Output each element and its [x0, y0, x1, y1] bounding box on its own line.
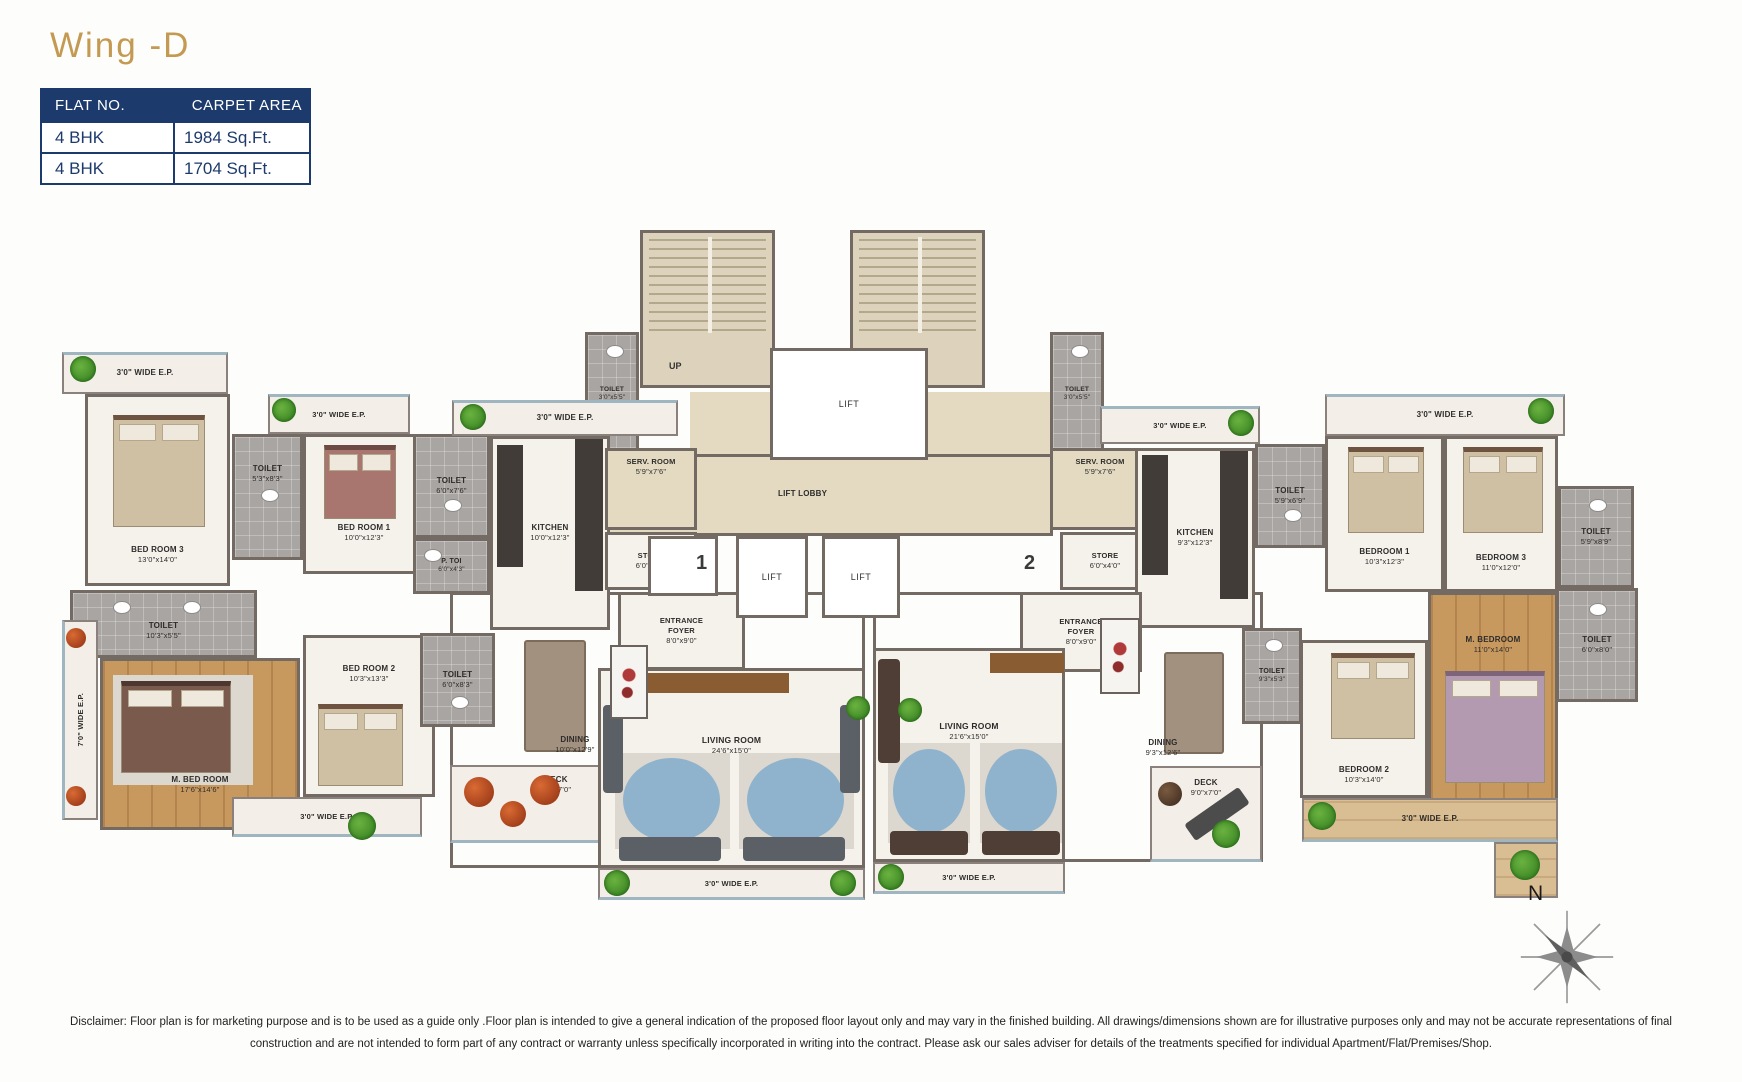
wall-art	[610, 645, 648, 719]
room-label: TOILET 6'0"x8'0"	[1582, 635, 1612, 655]
room-label: STORE 6'0"x4'0"	[1090, 551, 1120, 571]
core-duct	[648, 536, 718, 596]
plant-icon	[1228, 410, 1254, 436]
flat-type-cell: 4 BHK	[42, 123, 175, 152]
room-label: TOILET 10'3"x5'5"	[146, 621, 181, 641]
planter-icon	[66, 786, 86, 806]
lift-lobby-label: LIFT LOBBY	[778, 489, 827, 499]
plant-icon	[1212, 820, 1240, 848]
room-label: SERV. ROOM 5'9"x7'6"	[1075, 457, 1124, 477]
balcony-label: 3'0" WIDE E.P.	[117, 368, 174, 378]
toilet-bedroom2-left: TOILET 6'0"x8'3"	[420, 633, 495, 727]
bed-icon	[1331, 653, 1415, 739]
lift-label: LIFT	[839, 399, 860, 409]
kitchen-counter	[1142, 455, 1168, 575]
deck-right: DECK 9'0"x7'0"	[1150, 766, 1262, 862]
wc-icon	[183, 601, 201, 614]
room-label: M. BED ROOM 17'6"x14'6"	[171, 775, 228, 795]
planter-icon	[500, 801, 526, 827]
wc-icon	[261, 489, 279, 502]
compass-north-label: N	[1528, 882, 1543, 906]
carpet-area-header: CARPET AREA	[175, 90, 309, 121]
bedroom1-right: BEDROOM 1 10'3"x12'3"	[1325, 436, 1444, 592]
disclaimer-line-1: Disclaimer: Floor plan is for marketing …	[0, 1016, 1742, 1028]
plant-icon	[460, 404, 486, 430]
carpet-area-cell: 1704 Sq.Ft.	[175, 154, 309, 183]
table-row: 4 BHK 1704 Sq.Ft.	[42, 152, 309, 183]
tv-console	[990, 653, 1064, 673]
balcony-label: 3'0" WIDE E.P.	[1402, 814, 1459, 824]
powder-toilet-left: P. TOI 6'0"x4'3"	[413, 538, 490, 594]
sofa-icon	[890, 831, 968, 855]
room-label: TOILET 5'9"x8'9"	[1581, 527, 1611, 547]
room-label: ENTRANCE FOYER 8'0"x9'0"	[647, 616, 717, 645]
living-room-right: LIVING ROOM 21'6"x15'0"	[873, 648, 1065, 862]
bedroom2-left: BED ROOM 2 10'3"x13'3"	[303, 635, 435, 797]
plant-icon	[1308, 802, 1336, 830]
plant-icon	[1528, 398, 1554, 424]
toilet-bedroom3-right: TOILET 5'9"x8'9"	[1558, 486, 1634, 588]
wc-icon	[1265, 639, 1283, 652]
bedroom3-right: BEDROOM 3 11'0"x12'0"	[1444, 436, 1558, 592]
plant-icon	[272, 398, 296, 422]
flat-area-table: FLAT NO. CARPET AREA 4 BHK 1984 Sq.Ft. 4…	[40, 88, 311, 185]
sofa-icon	[878, 659, 900, 763]
room-label: BEDROOM 2 10'3"x14'0"	[1339, 765, 1389, 785]
sofa-icon	[743, 837, 845, 861]
room-label: BEDROOM 3 11'0"x12'0"	[1476, 553, 1526, 573]
lift-1: LIFT	[736, 536, 808, 618]
plant-icon	[1510, 850, 1540, 880]
balcony-label: 3'0" WIDE E.P.	[300, 812, 353, 822]
room-label: TOILET 3'0"x5'5"	[1064, 386, 1091, 403]
disclaimer-line-2: construction and are not intended to for…	[0, 1038, 1742, 1050]
lift-label: LIFT	[762, 572, 783, 582]
kitchen-right: KITCHEN 9'3"x12'3"	[1135, 448, 1255, 628]
dining-label-left: DINING 10'0"x12'9"	[530, 735, 620, 755]
sofa-icon	[619, 837, 721, 861]
room-label: DECK 9'0"x7'0"	[1191, 778, 1221, 798]
plant-icon	[898, 698, 922, 722]
round-rug	[747, 758, 844, 842]
wc-icon	[1589, 499, 1607, 512]
toilet-master-left: TOILET 10'3"x5'5"	[70, 590, 257, 658]
unit-number-2: 2	[1024, 552, 1035, 575]
dining-label-right: DINING 9'3"x12'6"	[1118, 738, 1208, 758]
master-bedroom-right: M. BEDROOM 11'0"x14'0"	[1428, 592, 1558, 806]
bedroom3-left: BED ROOM 3 13'0"x14'0"	[85, 394, 230, 586]
plant-icon	[604, 870, 630, 896]
balcony-label: 3'0" WIDE E.P.	[1417, 410, 1474, 420]
wc-icon	[1071, 345, 1089, 358]
balcony-label: 3'0" WIDE E.P.	[705, 879, 758, 889]
bedroom1-left: BED ROOM 1 10'0"x12'3"	[303, 434, 425, 574]
room-label: SERV. ROOM 5'9"x7'6"	[626, 457, 675, 477]
room-label: TOILET 5'9"x6'9"	[1275, 486, 1305, 506]
unit-number-1: 1	[696, 552, 707, 575]
carpet-area-cell: 1984 Sq.Ft.	[175, 123, 309, 152]
room-label: BED ROOM 1 10'0"x12'3"	[338, 523, 391, 543]
bed-icon	[318, 704, 403, 786]
bed-icon	[121, 681, 231, 773]
room-label: TOILET 5'3"x8'3"	[252, 464, 282, 484]
bedroom2-right: BEDROOM 2 10'3"x14'0"	[1300, 640, 1428, 798]
kitchen-left: KITCHEN 10'0"x12'3"	[490, 436, 610, 630]
kitchen-counter	[1220, 451, 1248, 599]
kitchen-counter	[575, 439, 603, 591]
room-label: LIVING ROOM 24'6"x15'0"	[702, 735, 761, 756]
tv-console	[629, 673, 789, 693]
room-label: BEDROOM 1 10'3"x12'3"	[1359, 547, 1409, 567]
bed-icon	[324, 445, 396, 519]
balcony-label: 3'0" WIDE E.P.	[942, 873, 995, 883]
balcony-label: 3'0" WIDE E.P.	[312, 410, 365, 420]
stair-divider	[918, 237, 922, 333]
flat-type-cell: 4 BHK	[42, 154, 175, 183]
wall-art	[1100, 618, 1140, 694]
planter-icon	[464, 777, 494, 807]
stair-divider	[708, 237, 712, 333]
lift-label: LIFT	[851, 572, 872, 582]
kitchen-counter	[497, 445, 523, 567]
toilet-bedroom1-left: TOILET 6'0"x7'6"	[413, 434, 490, 538]
lift-top: LIFT	[770, 348, 928, 460]
wc-icon	[606, 345, 624, 358]
bed-icon	[113, 415, 205, 527]
stairs-up-label: UP	[669, 361, 682, 371]
balcony-bedroom2-left: 3'0" WIDE E.P.	[232, 797, 422, 837]
wc-icon	[113, 601, 131, 614]
room-label: BED ROOM 2 10'3"x13'3"	[343, 664, 396, 684]
flat-no-header: FLAT NO.	[42, 90, 175, 121]
bed-icon	[1463, 447, 1543, 533]
compass-icon	[1512, 902, 1622, 1012]
round-rug	[893, 749, 965, 833]
room-label: KITCHEN 9'3"x12'3"	[1177, 528, 1214, 548]
page-title: Wing -D	[50, 26, 190, 66]
wc-icon	[444, 499, 462, 512]
toilet-bedroom3-left: TOILET 5'3"x8'3"	[232, 434, 303, 560]
room-label: P. TOI 6'0"x4'3"	[438, 557, 465, 575]
planter-icon	[530, 775, 560, 805]
plant-icon	[70, 356, 96, 382]
table-header-row: FLAT NO. CARPET AREA	[42, 90, 309, 121]
lift-2: LIFT	[822, 536, 900, 618]
room-label: TOILET 9'3"x5'3"	[1259, 667, 1286, 685]
wc-icon	[1284, 509, 1302, 522]
balcony-label: 3'0" WIDE E.P.	[537, 413, 594, 423]
room-label: M. BEDROOM 11'0"x14'0"	[1466, 635, 1521, 655]
balcony-label: 7'0" WIDE E.P.	[76, 693, 86, 746]
toilet-common-right: TOILET 3'0"x5'5"	[1050, 332, 1104, 456]
plant-icon	[830, 870, 856, 896]
sofa-icon	[982, 831, 1060, 855]
staircase-left: UP	[640, 230, 775, 388]
round-rug	[623, 758, 720, 842]
table-row: 4 BHK 1984 Sq.Ft.	[42, 121, 309, 152]
room-label: TOILET 6'0"x7'6"	[436, 476, 466, 496]
room-label: BED ROOM 3 13'0"x14'0"	[131, 545, 184, 565]
planter-icon	[66, 628, 86, 648]
room-label: KITCHEN 10'0"x12'3"	[530, 523, 569, 543]
serv-room-left: SERV. ROOM 5'9"x7'6"	[605, 448, 697, 530]
toilet-dining-right: TOILET 9'3"x5'3"	[1242, 628, 1302, 724]
plant-icon	[846, 696, 870, 720]
planter-icon	[1158, 782, 1182, 806]
wc-icon	[451, 696, 469, 709]
bed-icon	[1445, 671, 1545, 783]
room-label: LIVING ROOM 21'6"x15'0"	[939, 721, 998, 742]
round-rug	[985, 749, 1057, 833]
plant-icon	[878, 864, 904, 890]
room-label: TOILET 6'0"x8'3"	[442, 670, 472, 690]
balcony-label: 3'0" WIDE E.P.	[1153, 421, 1206, 431]
plant-icon	[348, 812, 376, 840]
wc-icon	[1589, 603, 1607, 616]
toilet-master-right: TOILET 6'0"x8'0"	[1556, 588, 1638, 702]
balcony-bottom-left: 3'0" WIDE E.P.	[598, 868, 865, 900]
bed-icon	[1348, 447, 1424, 533]
toilet-kitchen-right: TOILET 5'9"x6'9"	[1255, 444, 1325, 548]
balcony-bedroom2-right: 3'0" WIDE E.P.	[1302, 798, 1558, 842]
